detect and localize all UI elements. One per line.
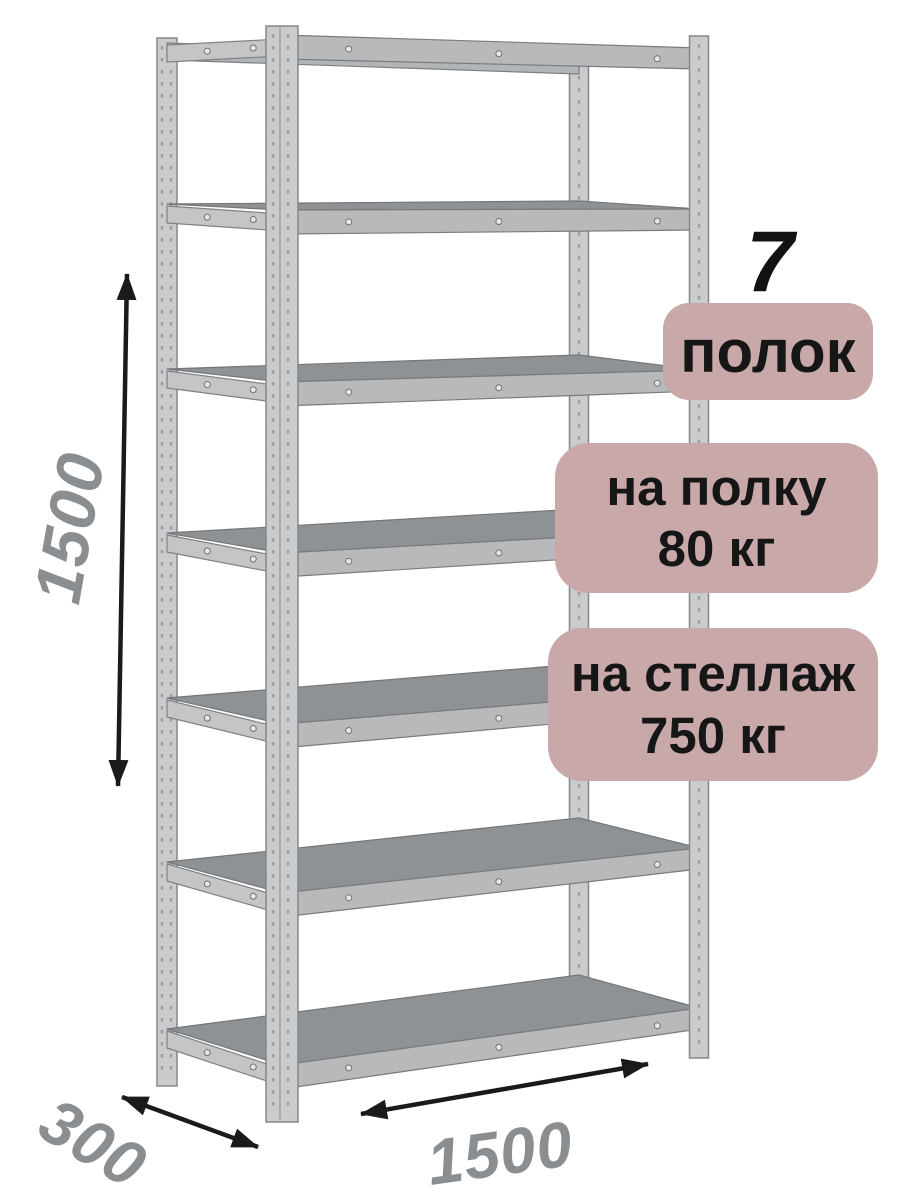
bolt [204, 382, 210, 388]
shelf-front-rail [282, 209, 699, 234]
badge-per-rack-load: на стеллаж 750 кг [548, 628, 878, 781]
bolt [250, 1064, 256, 1070]
product-image: 1500 300 1500 7 полок на полку 80 кг на … [0, 0, 900, 1200]
per-rack-load-value: 750 кг [640, 705, 786, 766]
dimension-width-label: 1500 [423, 1107, 578, 1199]
bolt [496, 879, 502, 885]
bolt [204, 48, 210, 54]
bolt [654, 1023, 660, 1029]
bolt [250, 726, 256, 732]
bolt [496, 715, 502, 721]
badge-per-shelf-load: на полку 80 кг [555, 443, 878, 593]
bolt [250, 556, 256, 562]
bolt [654, 862, 660, 868]
bolt [250, 45, 256, 51]
bolt [204, 214, 210, 220]
bolt [496, 1044, 502, 1050]
bolt [250, 893, 256, 899]
badge-shelf-count-label: полок [680, 316, 855, 388]
per-shelf-load-value: 80 кг [658, 518, 776, 579]
badge-shelf-count: полок [663, 303, 873, 400]
bolt [250, 217, 256, 223]
bolt [250, 387, 256, 393]
post-back-left [157, 38, 177, 1086]
bolt [346, 389, 352, 395]
bolt [346, 219, 352, 225]
bolt [496, 218, 502, 224]
bolt [346, 558, 352, 564]
per-rack-load-title: на стеллаж [571, 643, 855, 704]
bolt [204, 881, 210, 887]
bolt [204, 548, 210, 554]
rack-illustration: 1500 300 1500 [0, 0, 900, 1200]
post-front-left [266, 26, 298, 1122]
bolt [496, 550, 502, 556]
per-shelf-load-title: на полку [606, 457, 826, 518]
bolt [654, 218, 660, 224]
bolt [496, 51, 502, 57]
bolt [346, 728, 352, 734]
bolt [496, 385, 502, 391]
shelf-side-rail [167, 206, 282, 231]
bolt [204, 1050, 210, 1056]
bolt [654, 380, 660, 386]
shelf-count-number: 7 [695, 212, 845, 312]
bolt [346, 895, 352, 901]
height-arrow [118, 274, 127, 786]
bolt [346, 46, 352, 52]
bolt [654, 56, 660, 62]
bolt [204, 715, 210, 721]
dimension-height-label: 1500 [19, 447, 118, 608]
bolt [346, 1065, 352, 1071]
